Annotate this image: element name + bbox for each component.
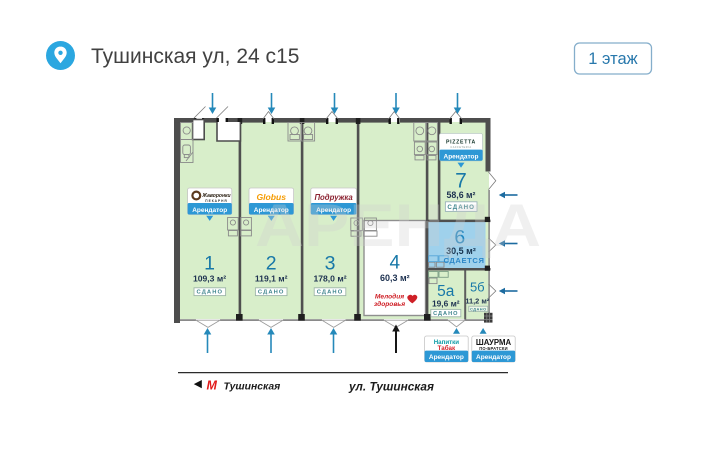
svg-text:119,1 м²: 119,1 м²	[255, 274, 288, 284]
svg-text:5б: 5б	[470, 280, 485, 295]
svg-text:Арендатор: Арендатор	[444, 153, 479, 160]
svg-text:ул. Тушинская: ул. Тушинская	[348, 380, 434, 394]
svg-text:PIZZETTA: PIZZETTA	[446, 140, 476, 146]
svg-text:60,3 м²: 60,3 м²	[380, 273, 410, 283]
svg-text:СДАНО: СДАНО	[196, 290, 223, 296]
svg-text:М: М	[207, 379, 218, 393]
svg-text:109,3 м²: 109,3 м²	[193, 274, 226, 284]
svg-text:19,6 м²: 19,6 м²	[432, 298, 460, 308]
svg-text:ПО-БРАТСКИ: ПО-БРАТСКИ	[479, 346, 507, 351]
svg-text:Арендатор: Арендатор	[429, 354, 464, 361]
svg-text:СДАНО: СДАНО	[258, 290, 285, 296]
svg-text:здоровья: здоровья	[374, 300, 405, 308]
svg-text:Табак: Табак	[438, 345, 456, 352]
svg-text:СДАНО: СДАНО	[317, 290, 344, 296]
svg-text:1: 1	[204, 253, 215, 275]
svg-text:11,2 м²: 11,2 м²	[465, 296, 489, 305]
svg-text:1 этаж: 1 этаж	[588, 50, 637, 68]
svg-text:178,0 м²: 178,0 м²	[313, 274, 346, 284]
svg-text:АРЕНДА: АРЕНДА	[255, 192, 541, 259]
svg-text:CAFFETERIA: CAFFETERIA	[450, 145, 471, 149]
svg-text:Тушинская: Тушинская	[224, 381, 281, 392]
svg-text:Мелодия: Мелодия	[375, 293, 404, 301]
svg-text:Арендатор: Арендатор	[476, 354, 511, 361]
svg-text:СДАНО: СДАНО	[433, 311, 458, 317]
svg-text:Арендатор: Арендатор	[192, 207, 227, 214]
svg-text:Тушинская ул, 24 с15: Тушинская ул, 24 с15	[91, 45, 299, 68]
svg-text:СДАНО: СДАНО	[470, 306, 487, 311]
svg-text:ПЕКАРНЯ: ПЕКАРНЯ	[205, 199, 227, 203]
